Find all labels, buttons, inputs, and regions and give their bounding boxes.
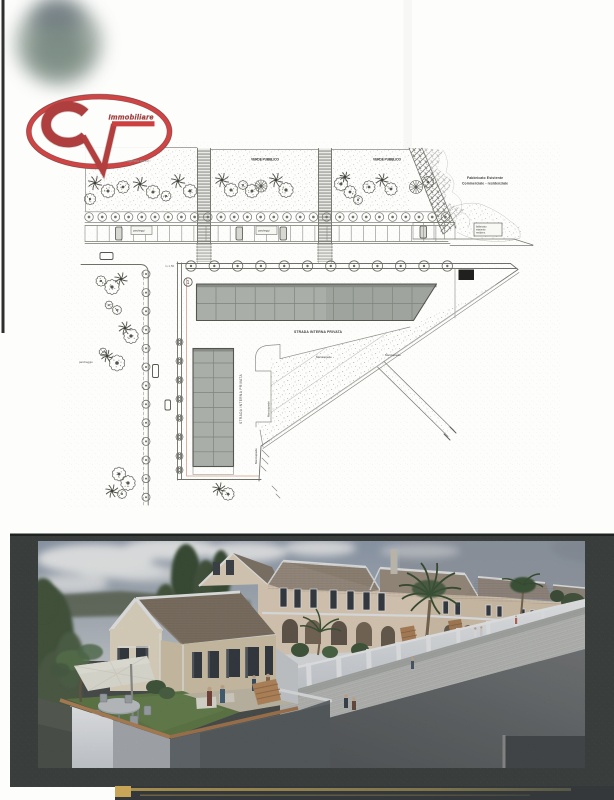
- svg-text:VERDE PUBBLICO: VERDE PUBBLICO: [251, 158, 279, 162]
- svg-text:Marciapiede: Marciapiede: [254, 448, 258, 464]
- svg-text:Immobiliare: Immobiliare: [109, 113, 154, 122]
- svg-text:parcheggio: parcheggio: [79, 360, 93, 364]
- svg-text:STRADA INTERNA PRIVATA: STRADA INTERNA PRIVATA: [239, 373, 243, 424]
- svg-text:STRADA INTERNA PRIVATA: STRADA INTERNA PRIVATA: [294, 330, 343, 334]
- svg-text:parcheggi: parcheggi: [258, 229, 270, 233]
- svg-text:Marciapiede: Marciapiede: [316, 355, 332, 359]
- svg-text:agenzia servizi: agenzia servizi: [127, 159, 150, 163]
- svg-text:1: 1: [187, 280, 190, 286]
- svg-text:residenz.: residenz.: [476, 232, 486, 235]
- svg-text:Marciapiede: Marciapiede: [267, 401, 271, 417]
- svg-text:VERDE PUBBLICO: VERDE PUBBLICO: [373, 158, 401, 162]
- svg-text:parcheggi: parcheggi: [133, 229, 145, 233]
- svg-text:Fabbricato Esistente: Fabbricato Esistente: [467, 176, 503, 180]
- svg-text:m 1,50: m 1,50: [165, 264, 175, 268]
- svg-text:Commerciale - residenziale: Commerciale - residenziale: [462, 182, 508, 186]
- svg-text:Marciapiede: Marciapiede: [385, 353, 401, 357]
